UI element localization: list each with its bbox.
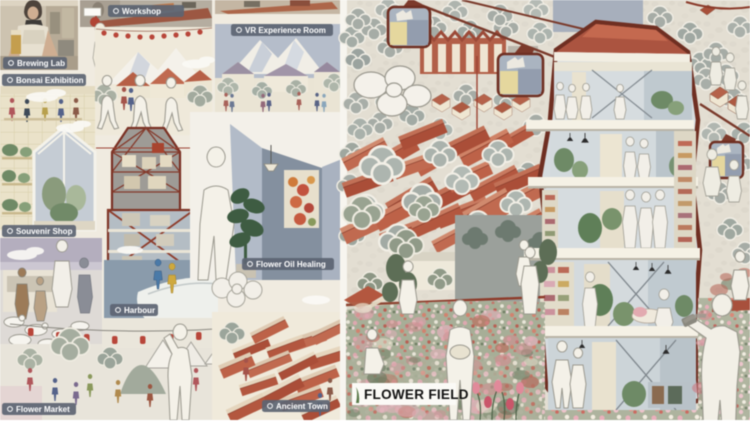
svg-text:VR Experience Room: VR Experience Room [245, 26, 326, 35]
svg-text:Flower Market: Flower Market [16, 405, 70, 414]
svg-text:Flower Oil Healing: Flower Oil Healing [256, 260, 326, 269]
svg-text:Ancient Town: Ancient Town [276, 402, 328, 411]
svg-text:Bonsai Exhibition: Bonsai Exhibition [16, 76, 84, 85]
svg-text:Souvenir Shop: Souvenir Shop [16, 227, 73, 236]
svg-text:Harbour: Harbour [124, 306, 155, 315]
svg-text:Brewing Lab: Brewing Lab [17, 59, 65, 68]
svg-text:Workshop: Workshop [122, 7, 161, 16]
svg-text:FLOWER FIELD: FLOWER FIELD [364, 387, 469, 402]
